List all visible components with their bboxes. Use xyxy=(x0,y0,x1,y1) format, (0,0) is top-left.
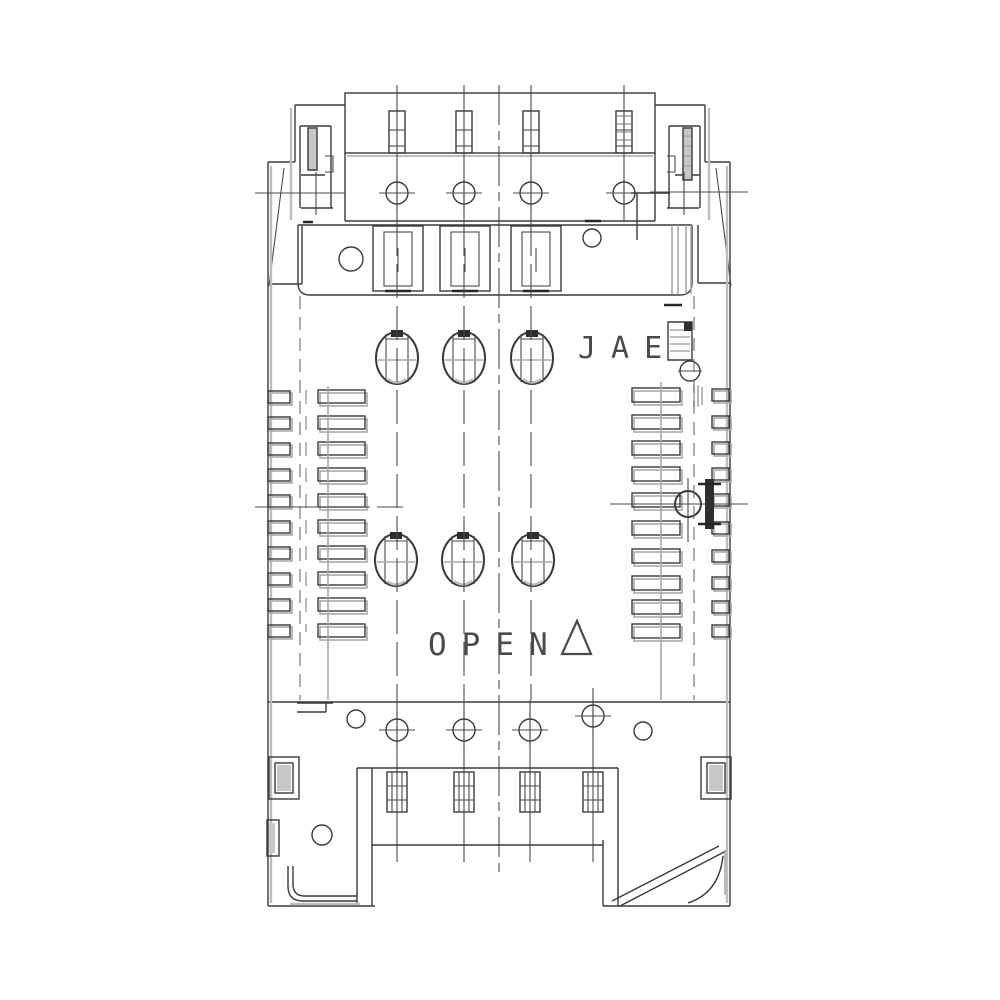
bottom-left-bracket xyxy=(267,820,375,906)
right-latch-detail xyxy=(667,126,700,215)
left-latch-detail xyxy=(300,126,333,215)
bottom-right-bracket xyxy=(603,846,730,906)
mid-contact-band xyxy=(298,221,692,295)
top-pin-row xyxy=(389,111,632,153)
bottom-pin-plate xyxy=(357,768,618,906)
sim-connector-technical-drawing: JAE OPEN xyxy=(0,0,1000,1000)
brand-label: JAE xyxy=(578,331,677,366)
side-mount-pads xyxy=(269,757,731,799)
right-spring-comb xyxy=(632,382,731,700)
drawing-page: JAE OPEN xyxy=(0,0,1000,1000)
open-triangle-icon xyxy=(562,621,591,654)
open-label: OPEN xyxy=(428,627,563,663)
left-spring-comb xyxy=(268,386,367,700)
